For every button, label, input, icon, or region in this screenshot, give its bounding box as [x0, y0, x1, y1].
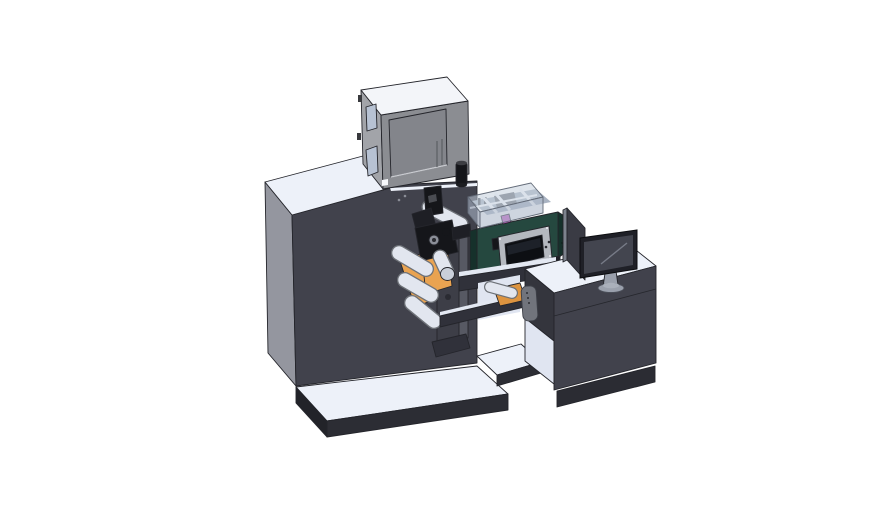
- cabinet-hinge: [357, 133, 361, 140]
- bezel-screw: [546, 227, 548, 229]
- rewind-roller-body: [490, 287, 512, 293]
- cabinet-hinge: [358, 95, 362, 102]
- cabinet-window: [366, 104, 377, 131]
- monitor-base-top: [603, 283, 619, 289]
- plate-hole: [445, 294, 451, 300]
- handle-dot: [526, 292, 528, 294]
- display-button: [545, 246, 548, 249]
- cabinet-label-plate: [382, 179, 388, 186]
- control-cabinet: [357, 77, 469, 189]
- rear-panel-edge: [563, 208, 567, 262]
- cad-render-canvas: [0, 0, 888, 522]
- roller-end-cap: [441, 268, 455, 281]
- handle-dot: [528, 302, 530, 304]
- mechanism-guide-hub: [432, 238, 436, 242]
- display-button: [548, 241, 551, 244]
- machine-face-screw: [404, 195, 407, 198]
- handle-dot: [527, 297, 529, 299]
- exhaust-cylinder-bottom: [456, 183, 467, 188]
- bezel-screw: [499, 238, 501, 240]
- exhaust-cylinder: [456, 163, 467, 185]
- bezel-screw: [549, 255, 551, 257]
- cabinet-window: [366, 146, 378, 176]
- cad-render-stage: [0, 0, 888, 522]
- mechanism-knob: [442, 228, 450, 236]
- machine-face-screw: [398, 199, 401, 202]
- tension-handle: [521, 285, 538, 321]
- exhaust-cylinder-top: [456, 161, 467, 166]
